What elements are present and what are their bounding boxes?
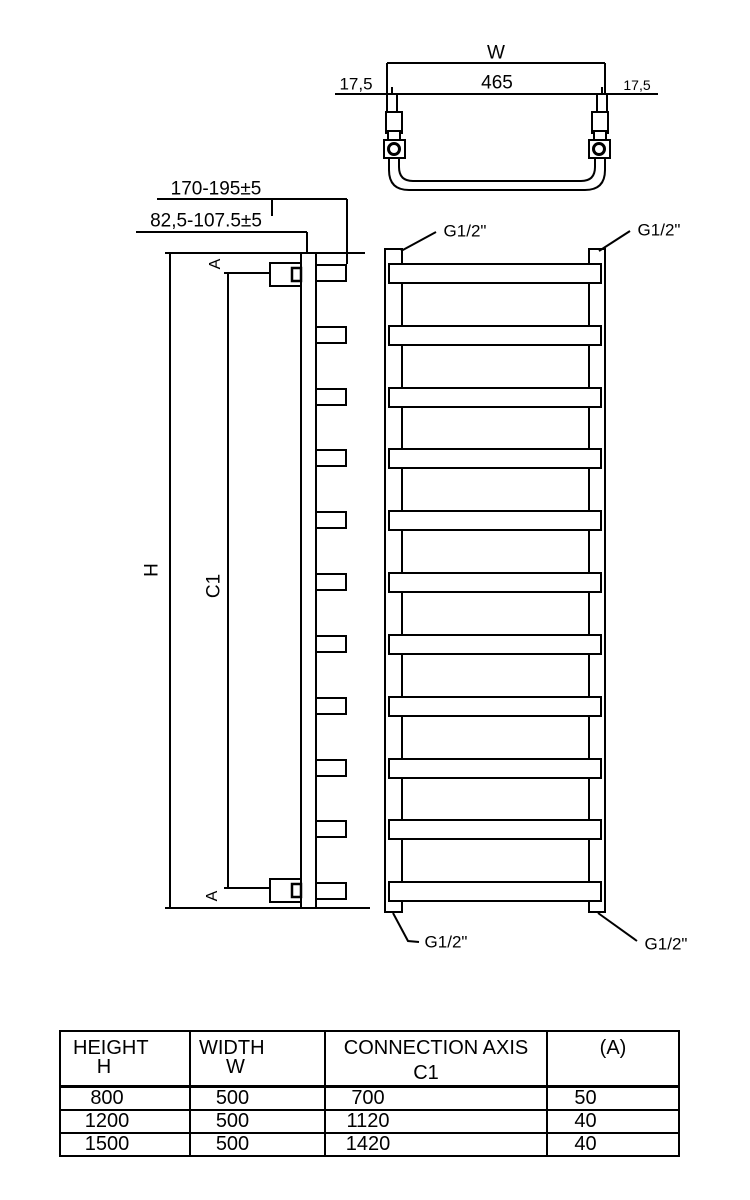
cell-a: 40 [547, 1133, 679, 1156]
top-left-clamp [388, 131, 400, 140]
top-right-pipe [597, 94, 607, 113]
front-rung [389, 511, 601, 530]
header-a: (A) [547, 1031, 679, 1087]
leader-top-left [401, 232, 436, 251]
cell-height-1500: 1500 [60, 1133, 190, 1156]
cell-width: 500 [190, 1087, 325, 1111]
side-rung [316, 698, 346, 714]
radiator-technical-drawing-page: W 465 17,5 17,5 170-195±5 82,5-107.5±5 H… [0, 0, 750, 1200]
top-left-bracket [386, 112, 402, 133]
front-view [385, 231, 637, 942]
cell-a: 40 [547, 1110, 679, 1133]
leader-top-right [599, 231, 630, 251]
leader-bottom-left [393, 913, 419, 942]
top-right-clamp [594, 131, 606, 140]
cell-width: 500 [190, 1133, 325, 1156]
top-right-bracket [592, 112, 608, 133]
top-view-offset-left-label: 17,5 [339, 76, 372, 93]
table-row: 800 500 700 50 [60, 1087, 679, 1111]
front-rung [389, 635, 601, 654]
front-rung [389, 264, 601, 283]
side-view-depth-axis-label: 82,5-107.5±5 [150, 212, 262, 231]
side-view-connection-axis-label: C1 [205, 574, 224, 598]
cell-connection-axis: 1120 [325, 1110, 547, 1133]
header-a-title: (A) [548, 1037, 678, 1060]
cell-connection-axis: 700 [325, 1087, 547, 1111]
side-rung [316, 450, 346, 466]
thread-callout-bottom-right: G1/2" [645, 936, 688, 953]
header-connection-axis: CONNECTION AXIS C1 [325, 1031, 547, 1087]
thread-callout-bottom-left: G1/2" [425, 934, 468, 951]
header-width: WIDTH W [190, 1031, 325, 1087]
front-rung [389, 759, 601, 778]
top-view-offset-right-label: 17,5 [623, 78, 650, 92]
side-view-height-label: H [143, 563, 162, 577]
side-view [136, 199, 370, 908]
header-width-symbol: W [191, 1056, 324, 1079]
front-rung [389, 388, 601, 407]
cell-a: 50 [547, 1087, 679, 1111]
thread-callout-top-right: G1/2" [638, 222, 681, 239]
side-rung [316, 883, 346, 899]
leader-bottom-right [598, 913, 637, 941]
side-rung [316, 636, 346, 652]
dimension-spec-table: HEIGHT H WIDTH W CONNECTION AXIS C1 (A) … [59, 1030, 680, 1157]
side-top-bracket-clamp [292, 268, 301, 281]
header-height: HEIGHT H [60, 1031, 190, 1087]
side-rung [316, 327, 346, 343]
top-view-width-label: W [487, 44, 505, 63]
side-rung [316, 574, 346, 590]
side-view-depth-outer-label: 170-195±5 [171, 180, 262, 199]
technical-drawing [0, 0, 750, 1200]
table-header-row: HEIGHT H WIDTH W CONNECTION AXIS C1 (A) [60, 1031, 679, 1087]
side-rail [301, 253, 316, 908]
front-rung [389, 697, 601, 716]
top-view-inner-span-label: 465 [481, 74, 513, 93]
cell-height-800: 800 [60, 1087, 190, 1111]
rung-tube-outer [389, 158, 605, 190]
section-marker-a-bottom: A [205, 891, 221, 902]
header-height-symbol: H [61, 1056, 189, 1079]
side-rung [316, 760, 346, 776]
table-row: 1500 500 1420 40 [60, 1133, 679, 1156]
thread-callout-top-left: G1/2" [444, 223, 487, 240]
front-rung [389, 882, 601, 901]
rung-tube-inner [399, 158, 595, 181]
side-rung [316, 512, 346, 528]
front-rung [389, 449, 601, 468]
section-marker-a-top: A [208, 259, 224, 270]
front-rung [389, 573, 601, 592]
side-bottom-bracket-clamp [292, 884, 301, 897]
cell-connection-axis: 1420 [325, 1133, 547, 1156]
front-rung [389, 820, 601, 839]
top-left-pipe [387, 94, 397, 113]
cell-width: 500 [190, 1110, 325, 1133]
side-rung [316, 265, 346, 281]
header-connection-axis-symbol: C1 [326, 1062, 546, 1085]
side-rung [316, 821, 346, 837]
header-connection-axis-title: CONNECTION AXIS [326, 1037, 546, 1060]
table-row: 1200 500 1120 40 [60, 1110, 679, 1133]
front-rung [389, 326, 601, 345]
cell-height-1200: 1200 [60, 1110, 190, 1133]
side-rung [316, 389, 346, 405]
